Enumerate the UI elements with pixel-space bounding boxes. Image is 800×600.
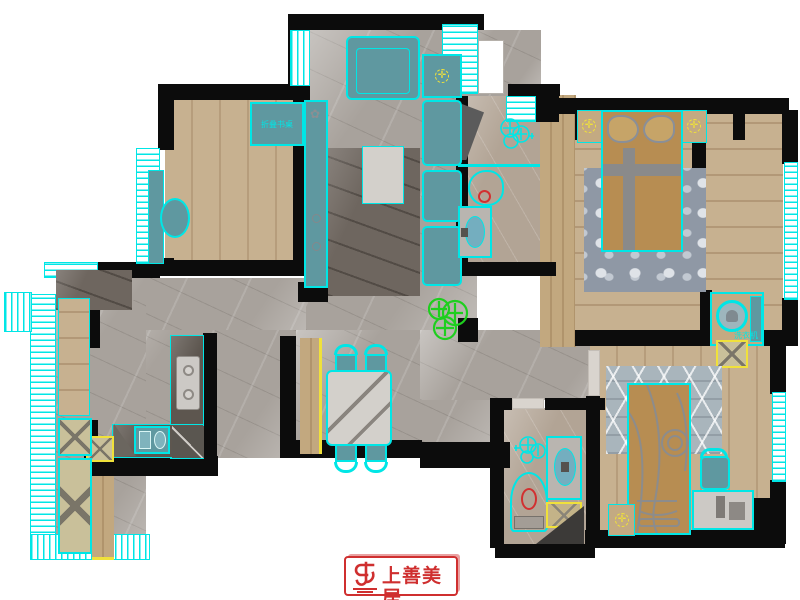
flower-icon: ✿ <box>310 108 320 120</box>
vanity-sink <box>546 436 582 500</box>
wall <box>545 398 605 410</box>
pillow <box>607 115 639 143</box>
lamp-icon: ✛ <box>582 119 596 133</box>
wall <box>586 396 600 532</box>
logo-text: 上善美居 <box>382 565 456 600</box>
logo-subtext-bar <box>357 591 373 593</box>
burner-icon <box>183 365 194 376</box>
kitchen-sink <box>134 426 170 454</box>
lamp-icon: ✛ <box>435 69 449 83</box>
speaker-icon <box>312 214 321 223</box>
dining-chair <box>365 444 387 462</box>
pillow <box>643 115 675 143</box>
toilet-seat <box>478 190 491 203</box>
bed-runner <box>603 164 681 176</box>
tap-icon <box>461 228 468 237</box>
wall <box>770 346 786 394</box>
corridor-floor <box>540 95 576 347</box>
burner-icon <box>183 389 194 400</box>
vanity-sink <box>458 206 492 258</box>
corner-cabinet <box>172 426 204 458</box>
shower-plant-icon <box>496 114 536 154</box>
sideboard <box>300 338 322 454</box>
toilet-icon <box>468 170 504 206</box>
balcony-window-left <box>30 294 56 558</box>
coffee-table <box>362 146 404 204</box>
plant-icon <box>424 294 472 344</box>
balcony-cabinet-x <box>58 418 92 456</box>
washing-machine-label: 洗衣机 <box>734 330 758 341</box>
chair-back <box>700 448 728 458</box>
logo-icon <box>352 561 378 587</box>
toilet-base <box>514 516 544 529</box>
tv-cabinet: ✿ <box>304 100 328 288</box>
balcony-window-corner <box>4 292 32 332</box>
wall <box>158 84 174 150</box>
sofa <box>346 36 420 100</box>
drum-icon <box>726 310 738 322</box>
wall <box>203 333 217 460</box>
logo-box: 上善美居 <box>344 556 458 596</box>
cabinet-x <box>716 340 748 368</box>
folding-desk: 折叠书桌 <box>250 102 304 146</box>
wall <box>158 260 310 276</box>
living-bay-window <box>290 30 310 86</box>
armchair <box>422 170 462 222</box>
master-window <box>784 162 798 300</box>
side-table: ✛ <box>422 54 462 98</box>
lamp-icon: ✛ <box>687 119 701 133</box>
folding-desk-label: 折叠书桌 <box>261 119 293 130</box>
monitor-icon <box>716 496 725 518</box>
balcony-shelf <box>92 476 114 560</box>
nightstand: ✛ <box>608 504 635 536</box>
wall <box>782 110 798 164</box>
wall <box>490 398 504 548</box>
master-bed <box>601 110 683 252</box>
sink-basin <box>139 431 151 449</box>
toilet-seat <box>521 488 537 510</box>
wall <box>495 544 595 558</box>
dining-table <box>326 370 392 446</box>
bathroom1-divider <box>458 164 540 167</box>
dining-chair <box>365 354 387 372</box>
lamp-icon: ✛ <box>615 513 629 527</box>
balcony-cabinet-x <box>58 458 92 554</box>
chair-back <box>364 462 388 473</box>
desk-with-computer <box>692 490 754 530</box>
speaker-icon <box>312 242 321 251</box>
wall-pilaster <box>733 112 745 140</box>
stove <box>176 356 200 410</box>
chair-back <box>334 462 358 473</box>
door-threshold <box>588 350 600 396</box>
desk-chair <box>700 456 730 490</box>
door-threshold <box>512 398 544 409</box>
sink-basin <box>154 431 166 449</box>
entry-door <box>478 40 504 94</box>
floor-plan: 折叠书桌 ✿ ✛ <box>0 0 800 600</box>
dining-chair <box>335 354 357 372</box>
tap-icon <box>561 462 569 472</box>
balcony-cabinet <box>58 298 90 416</box>
nightstand: ✛ <box>577 110 602 143</box>
dining-chair <box>335 444 357 462</box>
keyboard-icon <box>729 502 745 520</box>
logo-subtext-bar <box>353 588 377 590</box>
sofa-seat <box>356 48 410 94</box>
armchair <box>422 226 462 286</box>
bedroom2-bed <box>627 383 691 535</box>
nightstand: ✛ <box>681 110 707 143</box>
sink-icon <box>465 216 485 248</box>
study-chair <box>160 198 190 238</box>
wall <box>456 262 556 276</box>
armchair <box>422 100 462 166</box>
bedroom2-window <box>772 392 786 482</box>
toilet-icon <box>510 472 548 532</box>
